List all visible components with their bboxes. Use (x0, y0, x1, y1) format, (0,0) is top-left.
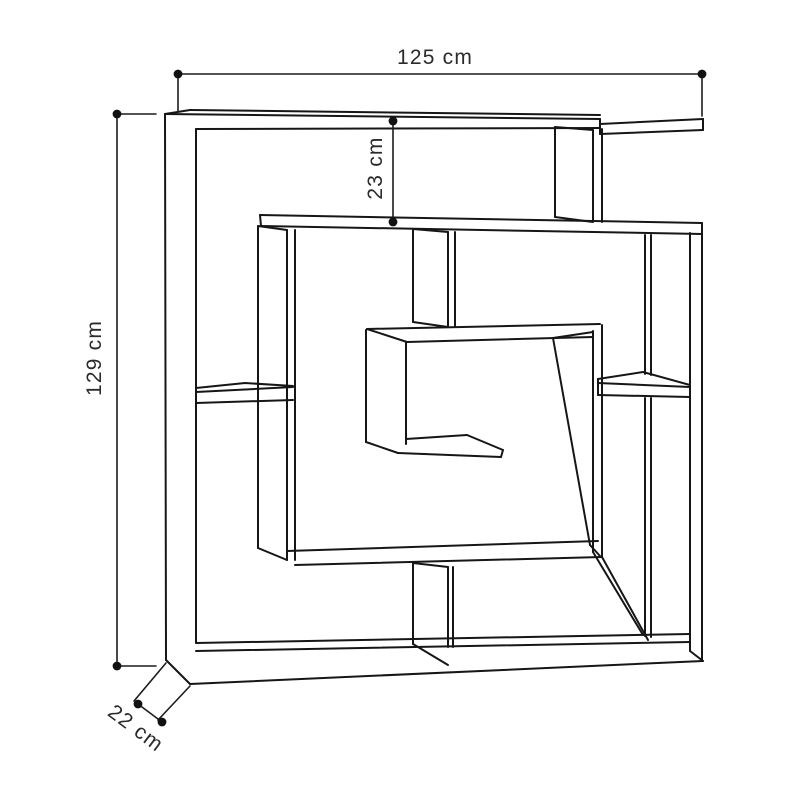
dimension-endpoint-dot (389, 218, 398, 227)
bookshelf-outline (165, 110, 703, 684)
dimension-top-section: 23 cm (364, 117, 397, 227)
dimension-endpoint-dot (113, 110, 122, 119)
top-divider (555, 127, 602, 222)
upper-center-divider (413, 229, 455, 327)
dimension-endpoint-dot (158, 718, 167, 727)
dimension-endpoint-dot (134, 700, 143, 709)
dimension-endpoint-dot (698, 70, 707, 79)
dimension-height: 129 cm (83, 110, 156, 671)
depth-dimension-label: 22 cm (104, 700, 168, 756)
bookshelf-line-drawing: 125 cm 129 cm 23 cm 22 cm (0, 0, 800, 800)
product-dimension-diagram: 125 cm 129 cm 23 cm 22 cm (0, 0, 800, 800)
second-shelf-board (260, 215, 702, 234)
top-section-dimension-label: 23 cm (364, 136, 387, 199)
top-board (165, 110, 703, 134)
lower-center-divider (413, 563, 453, 665)
spiral-left-wall (366, 330, 406, 444)
mid-left-shelf (196, 383, 293, 403)
dimension-endpoint-dot (389, 117, 398, 126)
right-divider (645, 235, 651, 637)
maze-bottom-board (287, 541, 602, 565)
maze-left-wall (258, 226, 295, 560)
dimension-width: 125 cm (174, 46, 707, 116)
dimension-endpoint-dot (113, 662, 122, 671)
spiral-top-board (367, 324, 600, 342)
left-side-panel (165, 114, 196, 684)
height-dimension-label: 129 cm (83, 320, 106, 396)
right-side-panel (690, 223, 703, 661)
mid-right-shelf (598, 372, 690, 397)
dimension-depth: 22 cm (104, 663, 190, 757)
bottom-board (190, 634, 703, 684)
spiral-tongue-shelf (366, 435, 503, 457)
dimension-endpoint-dot (174, 70, 183, 79)
width-dimension-label: 125 cm (397, 46, 473, 69)
spiral-right-wall (553, 325, 648, 640)
